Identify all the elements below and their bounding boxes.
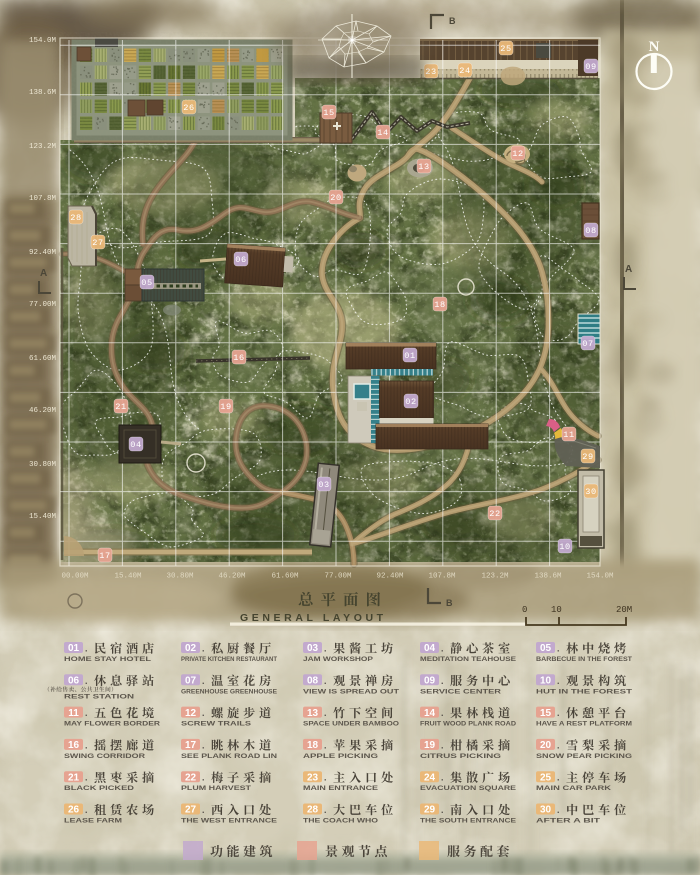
svg-text:.: .	[85, 644, 88, 654]
svg-text:.: .	[85, 708, 88, 718]
svg-text:07: 07	[185, 676, 197, 687]
svg-text:.: .	[202, 708, 205, 718]
svg-text:.: .	[202, 805, 205, 815]
svg-text:THE SOUTH ENTRANCE: THE SOUTH ENTRANCE	[420, 818, 517, 825]
svg-text:19: 19	[424, 740, 436, 751]
svg-text:138.6M: 138.6M	[29, 89, 57, 97]
svg-text:THE COACH WHO: THE COACH WHO	[303, 818, 378, 825]
svg-text:15: 15	[540, 708, 552, 719]
svg-text:GENERAL LAYOUT: GENERAL LAYOUT	[240, 612, 387, 624]
svg-text:.: .	[441, 708, 444, 718]
svg-text:26: 26	[183, 103, 195, 113]
svg-text:A: A	[40, 268, 47, 279]
svg-text:SWING CORRIDOR: SWING CORRIDOR	[64, 753, 146, 760]
svg-text:SCREW TRAILS: SCREW TRAILS	[181, 721, 252, 728]
svg-text:.: .	[85, 740, 88, 750]
svg-text:.: .	[202, 676, 205, 686]
svg-text:24: 24	[424, 772, 436, 783]
svg-text:13: 13	[307, 708, 319, 719]
svg-text:02: 02	[405, 397, 417, 407]
svg-text:16: 16	[233, 353, 245, 363]
svg-text:61.60M: 61.60M	[271, 573, 299, 581]
svg-text:.: .	[441, 805, 444, 815]
svg-text:.: .	[324, 644, 327, 654]
svg-text:20: 20	[330, 193, 342, 203]
svg-text:.: .	[324, 708, 327, 718]
svg-text:THE WEST ENTRANCE: THE WEST ENTRANCE	[181, 818, 278, 825]
svg-text:107.8M: 107.8M	[428, 573, 456, 581]
svg-text:.: .	[557, 773, 560, 783]
svg-text:SEE PLANK ROAD LIN: SEE PLANK ROAD LIN	[181, 753, 278, 760]
svg-text:SERVICE CENTER: SERVICE CENTER	[420, 688, 502, 695]
svg-text:VIEW IS SPREAD OUT: VIEW IS SPREAD OUT	[303, 688, 399, 695]
svg-text:HAVE A REST PLATFORM: HAVE A REST PLATFORM	[536, 721, 632, 728]
svg-text:28: 28	[70, 213, 82, 223]
svg-text:.: .	[202, 740, 205, 750]
svg-text:13: 13	[418, 162, 430, 172]
svg-text:01: 01	[404, 351, 416, 361]
svg-text:138.6M: 138.6M	[534, 573, 562, 581]
svg-text:MAIN ENTRANCE: MAIN ENTRANCE	[303, 785, 379, 792]
svg-text:21: 21	[68, 772, 80, 783]
svg-text:05: 05	[141, 278, 153, 288]
svg-text:02: 02	[185, 643, 197, 654]
svg-text:09: 09	[424, 676, 436, 687]
svg-text:92.40M: 92.40M	[29, 249, 57, 257]
svg-text:.: .	[557, 644, 560, 654]
svg-text:.: .	[202, 644, 205, 654]
svg-text:30.80M: 30.80M	[166, 573, 194, 581]
svg-text:18: 18	[434, 300, 446, 310]
svg-text:30: 30	[585, 487, 597, 497]
svg-text:00.00M: 00.00M	[61, 573, 89, 581]
svg-text:.: .	[557, 708, 560, 718]
svg-text:26: 26	[68, 805, 80, 816]
svg-text:27: 27	[92, 238, 104, 248]
svg-text:23: 23	[307, 772, 319, 783]
svg-text:B: B	[446, 598, 453, 608]
svg-text:.: .	[557, 805, 560, 815]
svg-text:12: 12	[512, 149, 524, 159]
svg-text:15: 15	[323, 108, 335, 118]
svg-text:77.00M: 77.00M	[29, 301, 57, 309]
svg-text:123.2M: 123.2M	[29, 143, 57, 151]
svg-text:.: .	[202, 773, 205, 783]
svg-text:REST STATION: REST STATION	[64, 693, 135, 700]
svg-text:15.40M: 15.40M	[29, 513, 57, 521]
svg-text:.: .	[441, 773, 444, 783]
svg-text:16: 16	[68, 740, 80, 751]
svg-text:21: 21	[115, 402, 127, 412]
svg-text:.: .	[324, 676, 327, 686]
svg-text:PRIVATE KITCHEN RESTAURANT: PRIVATE KITCHEN RESTAURANT	[181, 656, 277, 663]
svg-text:46.20M: 46.20M	[218, 573, 246, 581]
svg-text:46.20M: 46.20M	[29, 407, 57, 415]
svg-text:05: 05	[540, 643, 552, 654]
svg-text:61.60M: 61.60M	[29, 355, 57, 363]
svg-text:03: 03	[318, 480, 330, 490]
svg-text:.: .	[441, 644, 444, 654]
svg-text:29: 29	[424, 805, 436, 816]
svg-text:A: A	[625, 264, 632, 275]
svg-text:CITRUS PICKING: CITRUS PICKING	[420, 753, 501, 760]
svg-text:01: 01	[68, 643, 80, 654]
svg-text:N: N	[649, 39, 660, 55]
svg-text:14: 14	[377, 128, 389, 138]
svg-text:25: 25	[540, 772, 552, 783]
svg-text:11: 11	[563, 430, 575, 440]
svg-text:19: 19	[220, 402, 232, 412]
svg-text:SPACE UNDER BAMBOO: SPACE UNDER BAMBOO	[303, 721, 399, 728]
svg-text:JAM WORKSHOP: JAM WORKSHOP	[303, 656, 374, 663]
svg-text:06: 06	[68, 676, 80, 687]
svg-text:23: 23	[425, 67, 437, 77]
svg-text:09: 09	[585, 62, 597, 72]
svg-text:29: 29	[582, 452, 594, 462]
svg-text:10: 10	[559, 542, 571, 552]
svg-text:08: 08	[585, 226, 597, 236]
svg-text:AFTER A BIT: AFTER A BIT	[536, 818, 600, 825]
svg-text:25: 25	[500, 44, 512, 54]
svg-text:30: 30	[540, 805, 552, 816]
svg-text:MEDITATION TEAHOUSE: MEDITATION TEAHOUSE	[420, 656, 517, 663]
svg-text:.: .	[557, 740, 560, 750]
svg-text:MAIN CAR PARK: MAIN CAR PARK	[536, 785, 612, 792]
svg-text:12: 12	[185, 708, 197, 719]
svg-text:LEASE FARM: LEASE FARM	[64, 818, 122, 825]
svg-text:MAY FLOWER BORDER: MAY FLOWER BORDER	[64, 721, 161, 728]
svg-text:92.40M: 92.40M	[376, 573, 404, 581]
svg-text:.: .	[557, 676, 560, 686]
svg-text:20: 20	[540, 740, 552, 751]
svg-text:.: .	[441, 740, 444, 750]
svg-text:154.0M: 154.0M	[29, 37, 57, 45]
svg-text:BARBECUE IN THE FOREST: BARBECUE IN THE FOREST	[536, 656, 632, 663]
svg-text:.: .	[85, 773, 88, 783]
svg-text:28: 28	[307, 805, 319, 816]
svg-text:FRUIT WOOD PLANK ROAD: FRUIT WOOD PLANK ROAD	[420, 721, 516, 728]
svg-text:10: 10	[540, 676, 552, 687]
svg-text:07: 07	[582, 339, 594, 349]
svg-text:0: 0	[522, 605, 527, 615]
svg-text:B: B	[449, 16, 456, 26]
svg-text:20M: 20M	[616, 605, 632, 615]
svg-text:10: 10	[551, 605, 562, 615]
svg-text:PLUM HARVEST: PLUM HARVEST	[181, 785, 251, 792]
svg-text:GREENHOUSE GREENHOUSE: GREENHOUSE GREENHOUSE	[181, 688, 278, 695]
svg-text:.: .	[441, 676, 444, 686]
svg-text:EVACUATION SQUARE: EVACUATION SQUARE	[420, 785, 517, 792]
svg-text:04: 04	[130, 440, 142, 450]
svg-text:BLACK PICKED: BLACK PICKED	[64, 785, 135, 792]
svg-text:.: .	[324, 740, 327, 750]
svg-text:17: 17	[185, 740, 197, 751]
svg-text:15.40M: 15.40M	[114, 573, 142, 581]
svg-text:SNOW PEAR PICKING: SNOW PEAR PICKING	[536, 753, 632, 760]
svg-text:.: .	[85, 676, 88, 686]
svg-text:APPLE PICKING: APPLE PICKING	[303, 753, 378, 760]
svg-text:.: .	[324, 805, 327, 815]
svg-text:154.0M: 154.0M	[586, 573, 614, 581]
svg-text:03: 03	[307, 643, 319, 654]
svg-text:.: .	[324, 773, 327, 783]
svg-text:24: 24	[459, 66, 471, 76]
svg-text:14: 14	[424, 708, 436, 719]
svg-text:HUT IN THE FOREST: HUT IN THE FOREST	[536, 688, 632, 695]
svg-text:27: 27	[185, 805, 197, 816]
svg-text:30.80M: 30.80M	[29, 461, 57, 469]
svg-text:08: 08	[307, 676, 319, 687]
svg-text:04: 04	[424, 643, 436, 654]
svg-text:77.00M: 77.00M	[324, 573, 352, 581]
svg-text:11: 11	[68, 708, 79, 719]
svg-text:17: 17	[99, 551, 111, 561]
svg-text:HOME STAY HOTEL: HOME STAY HOTEL	[64, 656, 151, 663]
svg-text:18: 18	[307, 740, 319, 751]
svg-text:.: .	[85, 805, 88, 815]
svg-text:22: 22	[185, 772, 197, 783]
svg-text:107.8M: 107.8M	[29, 195, 57, 203]
svg-text:22: 22	[489, 509, 501, 519]
svg-text:123.2M: 123.2M	[481, 573, 509, 581]
svg-text:06: 06	[235, 255, 247, 265]
